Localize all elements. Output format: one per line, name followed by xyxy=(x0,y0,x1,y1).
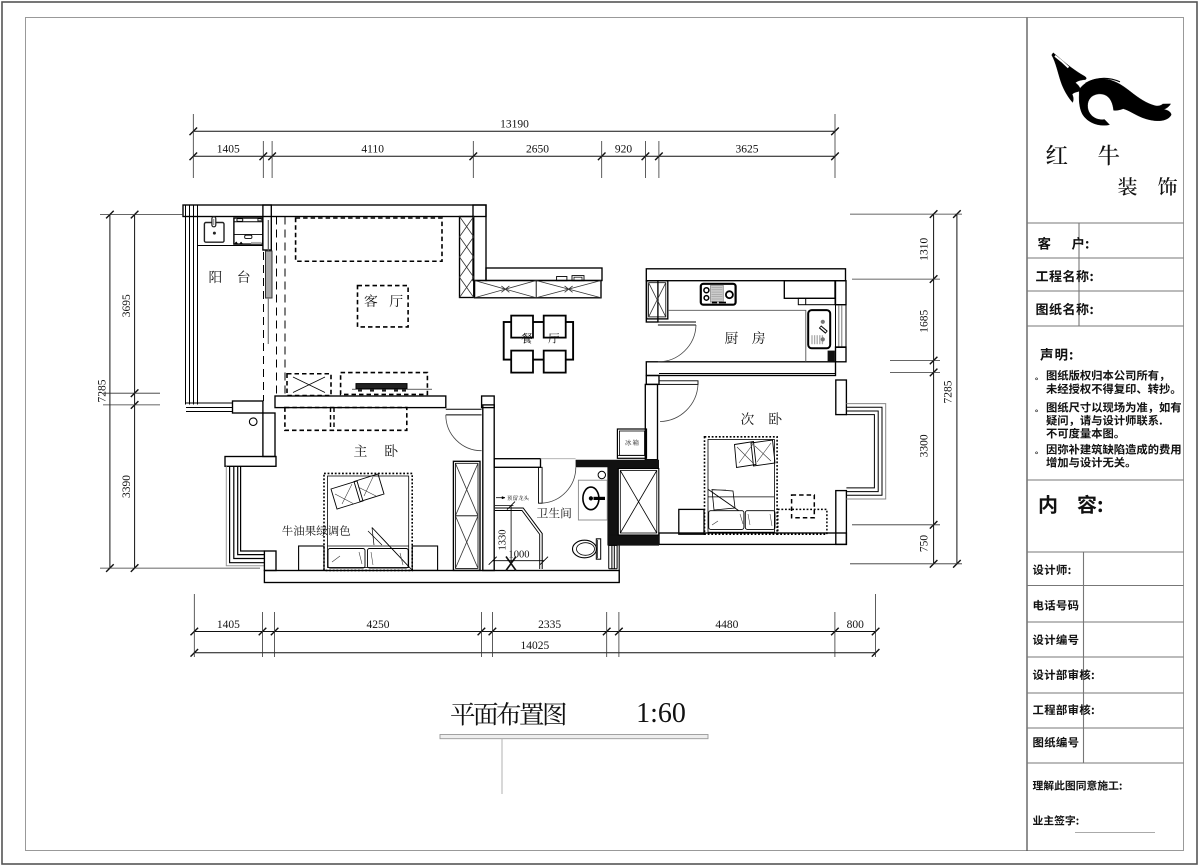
svg-text:800: 800 xyxy=(847,619,865,631)
svg-text:2650: 2650 xyxy=(526,144,549,156)
svg-text:7285: 7285 xyxy=(943,380,955,403)
svg-text:7285: 7285 xyxy=(97,379,109,402)
svg-text:4480: 4480 xyxy=(715,619,738,631)
svg-text:14025: 14025 xyxy=(521,640,550,652)
svg-text:4250: 4250 xyxy=(367,619,390,631)
svg-text:1310: 1310 xyxy=(919,238,931,261)
svg-text:750: 750 xyxy=(919,535,931,553)
svg-text:1000: 1000 xyxy=(509,550,530,561)
svg-text:3390: 3390 xyxy=(121,475,133,498)
svg-text:4110: 4110 xyxy=(361,144,384,156)
svg-text:1405: 1405 xyxy=(217,144,240,156)
svg-text:920: 920 xyxy=(615,144,633,156)
svg-text:13190: 13190 xyxy=(500,119,529,131)
svg-text:1685: 1685 xyxy=(919,309,931,332)
svg-text:1:60: 1:60 xyxy=(636,698,686,729)
svg-text:3695: 3695 xyxy=(121,294,133,317)
svg-text:3625: 3625 xyxy=(736,144,759,156)
svg-text:1330: 1330 xyxy=(498,530,509,551)
svg-text:1405: 1405 xyxy=(217,619,240,631)
svg-text:2335: 2335 xyxy=(538,619,561,631)
svg-text:3300: 3300 xyxy=(919,434,931,457)
